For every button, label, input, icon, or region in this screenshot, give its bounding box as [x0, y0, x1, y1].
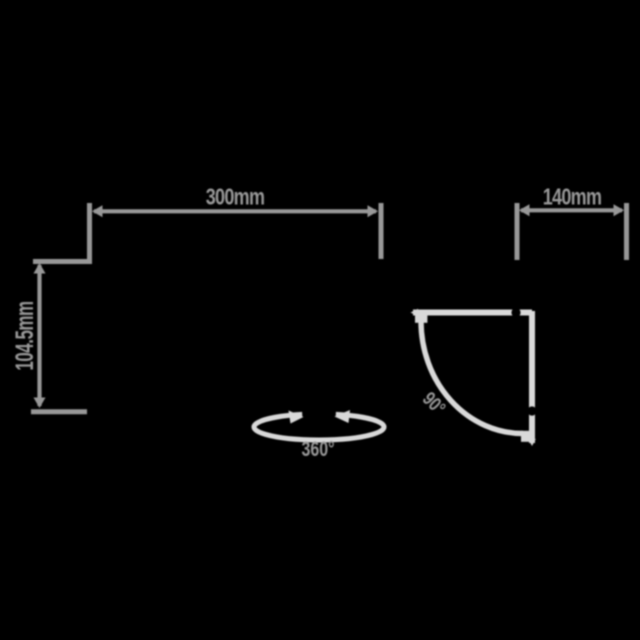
svg-text:360°: 360°	[301, 437, 334, 461]
svg-text:140mm: 140mm	[543, 184, 602, 210]
svg-text:104.5mm: 104.5mm	[12, 301, 39, 370]
svg-text:300mm: 300mm	[206, 184, 265, 210]
